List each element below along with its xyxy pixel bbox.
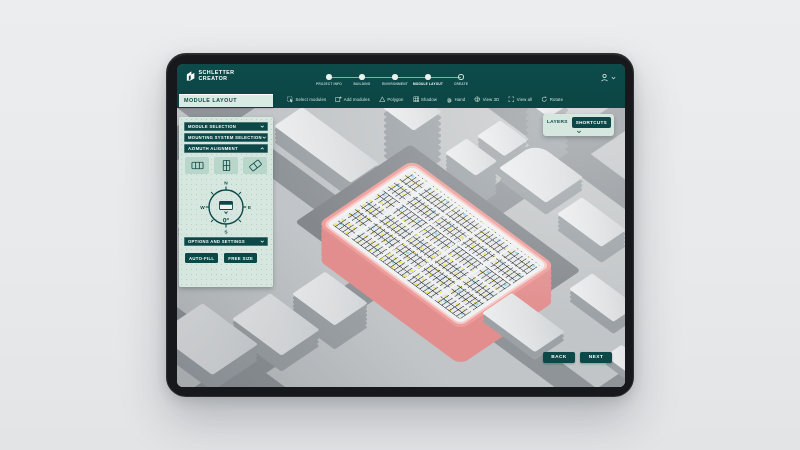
compass-east-label: E bbox=[248, 205, 252, 211]
step-dot bbox=[359, 74, 365, 80]
chevron-down-icon bbox=[260, 240, 265, 243]
tablet-device-frame: SCHLETTER CREATOR PROJECT INFO BUILDING bbox=[166, 53, 634, 397]
step-dot bbox=[458, 74, 464, 80]
module-landscape-option[interactable] bbox=[185, 157, 209, 174]
step-dot bbox=[425, 74, 431, 80]
step-create[interactable]: CREATE bbox=[445, 69, 477, 86]
step-project-info[interactable]: PROJECT INFO bbox=[313, 69, 345, 86]
view-all-icon bbox=[508, 96, 515, 103]
layers-button[interactable]: LAYERS bbox=[546, 120, 569, 125]
hand-icon bbox=[446, 96, 453, 103]
app-screen: SCHLETTER CREATOR PROJECT INFO BUILDING bbox=[177, 64, 625, 387]
back-button[interactable]: BACK bbox=[543, 352, 575, 363]
free-size-button[interactable]: FREE SIZE bbox=[224, 253, 257, 263]
view-3d-icon bbox=[474, 96, 481, 103]
tool-rotate[interactable]: Rotate bbox=[541, 96, 563, 103]
chevron-up-icon bbox=[260, 147, 265, 150]
city-building bbox=[274, 126, 308, 216]
panel-collapse-toggle[interactable] bbox=[546, 128, 611, 135]
compass-north-label: N bbox=[224, 181, 228, 187]
step-environment[interactable]: ENVIRONMENT bbox=[379, 69, 411, 86]
module-portrait-option[interactable] bbox=[214, 157, 238, 174]
module-direction-icon bbox=[220, 202, 233, 214]
user-menu[interactable] bbox=[600, 73, 616, 82]
workflow-stepper: PROJECT INFO BUILDING ENVIRONMENT MODULE… bbox=[313, 69, 477, 86]
city-building bbox=[177, 334, 212, 387]
page-title: MODULE LAYOUT bbox=[179, 94, 273, 107]
module-layout-sidebar: MODULE SELECTION MOUNTING SYSTEM SELECTI… bbox=[179, 117, 273, 287]
tool-polygon[interactable]: Polygon bbox=[379, 96, 404, 103]
module-orientation-options bbox=[185, 157, 267, 174]
wizard-nav: BACK NEXT bbox=[543, 352, 612, 363]
module-landscape-icon bbox=[190, 159, 205, 172]
city-building bbox=[569, 289, 597, 341]
accordion-azimuth-alignment[interactable]: AZIMUTH ALIGNMENT bbox=[184, 144, 268, 153]
step-building[interactable]: BUILDING bbox=[346, 69, 378, 86]
chevron-down-icon bbox=[576, 130, 582, 134]
add-modules-icon bbox=[335, 96, 342, 103]
module-tilted-icon bbox=[248, 159, 263, 172]
azimuth-compass[interactable]: N E S W 0° bbox=[184, 177, 268, 235]
accordion-mounting-system-selection[interactable]: MOUNTING SYSTEM SELECTION bbox=[184, 133, 268, 142]
tool-shadow[interactable]: Shadow bbox=[413, 96, 438, 103]
module-tilted-option[interactable] bbox=[243, 157, 267, 174]
next-button[interactable]: NEXT bbox=[580, 352, 612, 363]
tool-add-modules[interactable]: Add modules bbox=[335, 96, 370, 103]
sidebar-actions: AUTO-FILL FREE SIZE bbox=[184, 253, 268, 263]
step-dot bbox=[392, 74, 398, 80]
city-building bbox=[383, 108, 417, 144]
compass-west-label: W bbox=[200, 205, 205, 211]
accordion-options-and-settings[interactable]: OPTIONS AND SETTINGS bbox=[184, 237, 268, 246]
tool-hand[interactable]: Hand bbox=[446, 96, 465, 103]
layers-shortcuts-panel: LAYERS SHORTCUTS bbox=[543, 114, 614, 136]
chevron-down-icon bbox=[611, 76, 616, 80]
user-icon bbox=[600, 73, 609, 82]
shadow-icon bbox=[413, 96, 420, 103]
tool-view-3d[interactable]: View 3D bbox=[474, 96, 499, 103]
brand-line2: CREATOR bbox=[199, 76, 235, 82]
accordion-module-selection[interactable]: MODULE SELECTION bbox=[184, 122, 268, 131]
compass-south-label: S bbox=[224, 230, 228, 235]
step-dot bbox=[326, 74, 332, 80]
auto-fill-button[interactable]: AUTO-FILL bbox=[185, 253, 218, 263]
step-module-layout[interactable]: MODULE LAYOUT bbox=[412, 69, 444, 86]
brand-logo: SCHLETTER CREATOR bbox=[185, 70, 234, 82]
polygon-icon bbox=[379, 96, 386, 103]
module-portrait-icon bbox=[219, 159, 234, 172]
select-modules-icon bbox=[287, 96, 294, 103]
schletter-logo-icon bbox=[185, 70, 196, 82]
chevron-down-icon bbox=[262, 136, 267, 139]
tool-view-all[interactable]: View all bbox=[508, 96, 532, 103]
shortcuts-button[interactable]: SHORTCUTS bbox=[572, 117, 611, 128]
azimuth-value: 0° bbox=[223, 216, 230, 224]
chevron-down-icon bbox=[260, 125, 265, 128]
city-building bbox=[482, 313, 518, 375]
rotate-icon bbox=[541, 96, 548, 103]
tool-select-modules[interactable]: Select modules bbox=[287, 96, 326, 103]
